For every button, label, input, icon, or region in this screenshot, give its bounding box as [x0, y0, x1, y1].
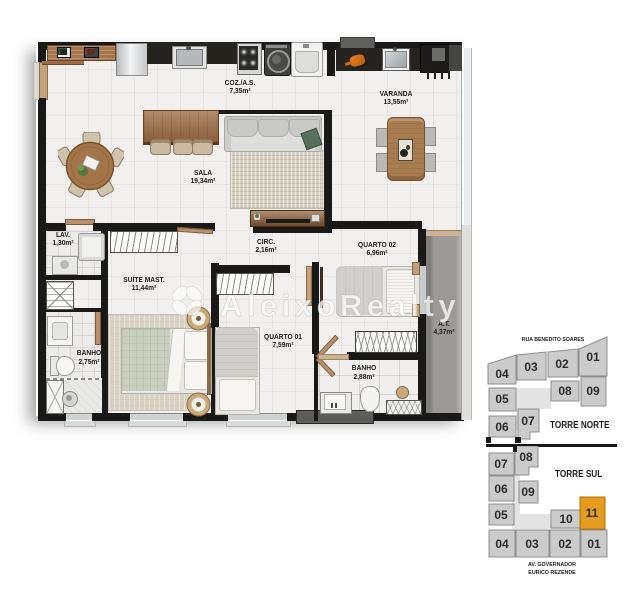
svg-text:07: 07	[521, 414, 535, 428]
svg-text:05: 05	[494, 508, 508, 522]
svg-text:03: 03	[525, 537, 539, 551]
svg-text:02: 02	[558, 537, 572, 551]
svg-text:03: 03	[524, 360, 538, 374]
svg-text:06: 06	[494, 482, 508, 496]
svg-text:02: 02	[555, 357, 569, 371]
svg-text:01: 01	[587, 537, 601, 551]
svg-text:07: 07	[494, 457, 508, 471]
svg-text:04: 04	[495, 367, 509, 381]
svg-text:08: 08	[519, 450, 533, 464]
svg-text:11: 11	[586, 506, 599, 520]
svg-text:01: 01	[586, 350, 600, 364]
svg-text:08: 08	[558, 384, 572, 398]
svg-text:05: 05	[495, 392, 509, 406]
svg-text:09: 09	[521, 485, 535, 499]
svg-text:06: 06	[495, 420, 509, 434]
svg-text:09: 09	[586, 384, 600, 398]
svg-text:04: 04	[495, 537, 509, 551]
svg-text:10: 10	[559, 512, 573, 526]
